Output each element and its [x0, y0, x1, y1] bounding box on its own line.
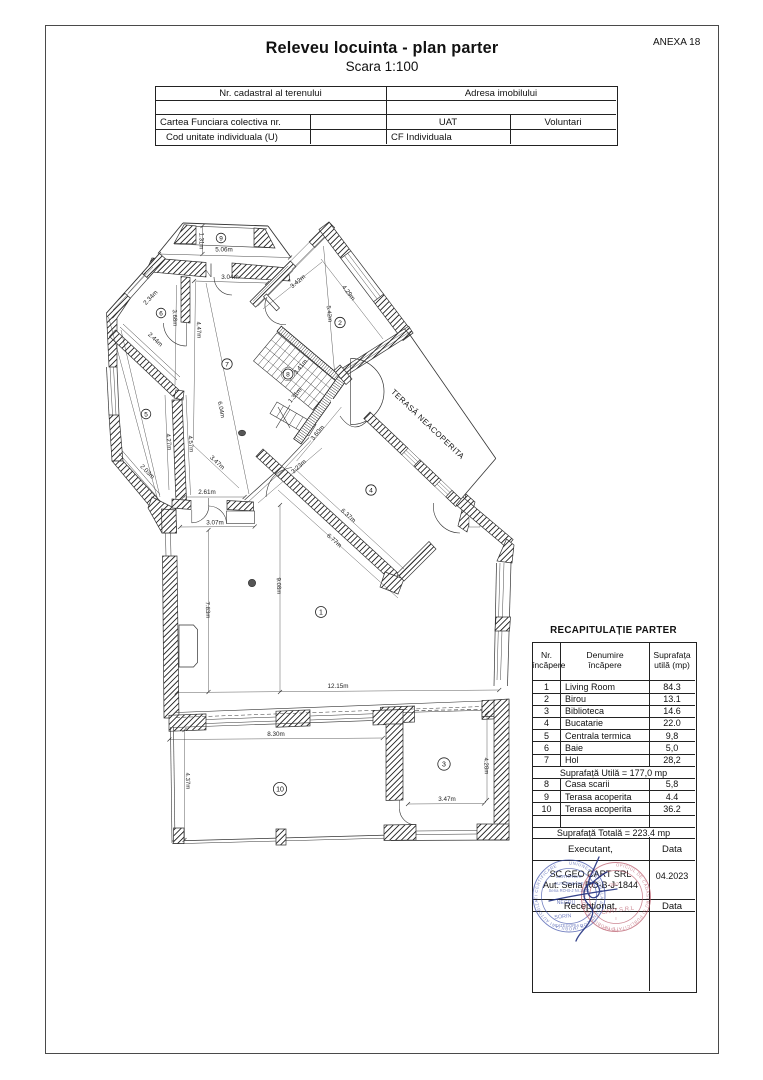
svg-text:CERTIFICAT: CERTIFICAT: [556, 874, 583, 879]
svg-text:2.44m: 2.44m: [146, 331, 164, 348]
svg-text:AUTORIZARE: AUTORIZARE: [554, 881, 584, 886]
svg-text:3.47m: 3.47m: [208, 454, 226, 471]
svg-text:8: 8: [286, 371, 290, 378]
svg-text:6.04m: 6.04m: [216, 401, 225, 419]
svg-text:CATEGORIA D: CATEGORIA D: [555, 923, 583, 928]
svg-text:3.04m: 3.04m: [221, 274, 239, 281]
svg-text:3.07m: 3.07m: [206, 520, 224, 527]
svg-text:8.30m: 8.30m: [267, 731, 285, 738]
svg-text:10: 10: [276, 787, 284, 794]
svg-text:4.27m: 4.27m: [164, 433, 171, 450]
svg-text:3: 3: [442, 762, 446, 769]
svg-text:2: 2: [338, 320, 342, 327]
svg-text:2.61m: 2.61m: [198, 489, 216, 496]
svg-text:1: 1: [319, 610, 323, 617]
svg-text:7: 7: [225, 361, 229, 368]
svg-text:GEO: GEO: [609, 881, 620, 887]
svg-text:SORIN: SORIN: [554, 913, 572, 921]
svg-text:2.03m: 2.03m: [138, 463, 155, 480]
svg-text:3.47m: 3.47m: [438, 796, 456, 803]
svg-text:2.34m: 2.34m: [142, 289, 159, 306]
svg-text:4.57m: 4.57m: [186, 435, 193, 452]
svg-text:4: 4: [369, 487, 373, 494]
svg-text:4.47m: 4.47m: [195, 321, 202, 338]
svg-text:9: 9: [219, 235, 223, 242]
svg-text:9.08m: 9.08m: [275, 578, 282, 595]
svg-text:12.15m: 12.15m: [327, 683, 348, 690]
svg-text:4.28m: 4.28m: [482, 758, 489, 775]
svg-text:5.42m: 5.42m: [325, 305, 333, 322]
svg-text:7.83m: 7.83m: [204, 602, 211, 619]
svg-text:5.06m: 5.06m: [215, 247, 233, 254]
svg-text:CART S.R.L: CART S.R.L: [601, 906, 635, 917]
svg-text:I: I: [615, 916, 616, 921]
svg-text:NEGRU: NEGRU: [557, 900, 576, 906]
svg-text:6: 6: [159, 310, 163, 317]
svg-text:3.68m: 3.68m: [171, 309, 178, 326]
svg-text:5: 5: [144, 411, 148, 418]
